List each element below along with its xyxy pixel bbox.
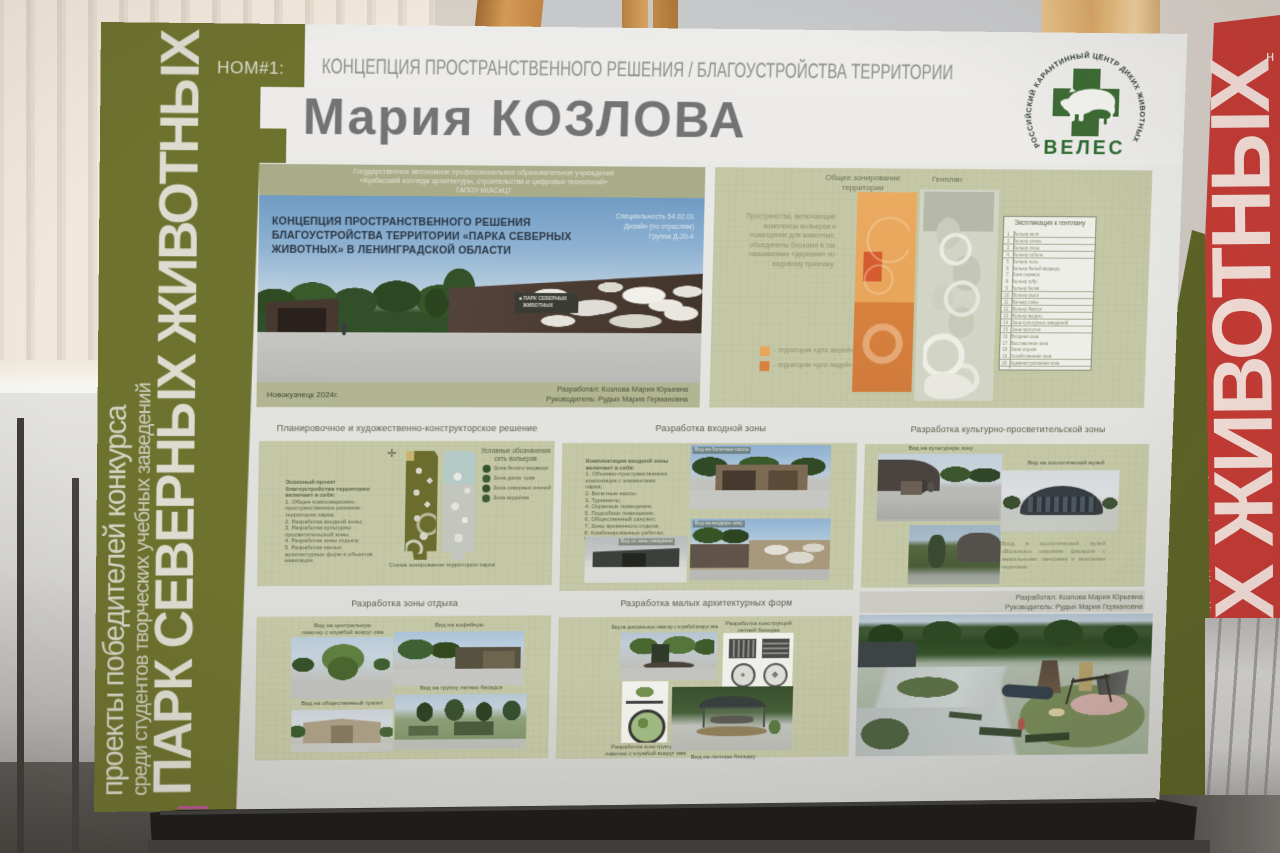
- svg-text:ВЕЛЕС: ВЕЛЕС: [1043, 136, 1126, 159]
